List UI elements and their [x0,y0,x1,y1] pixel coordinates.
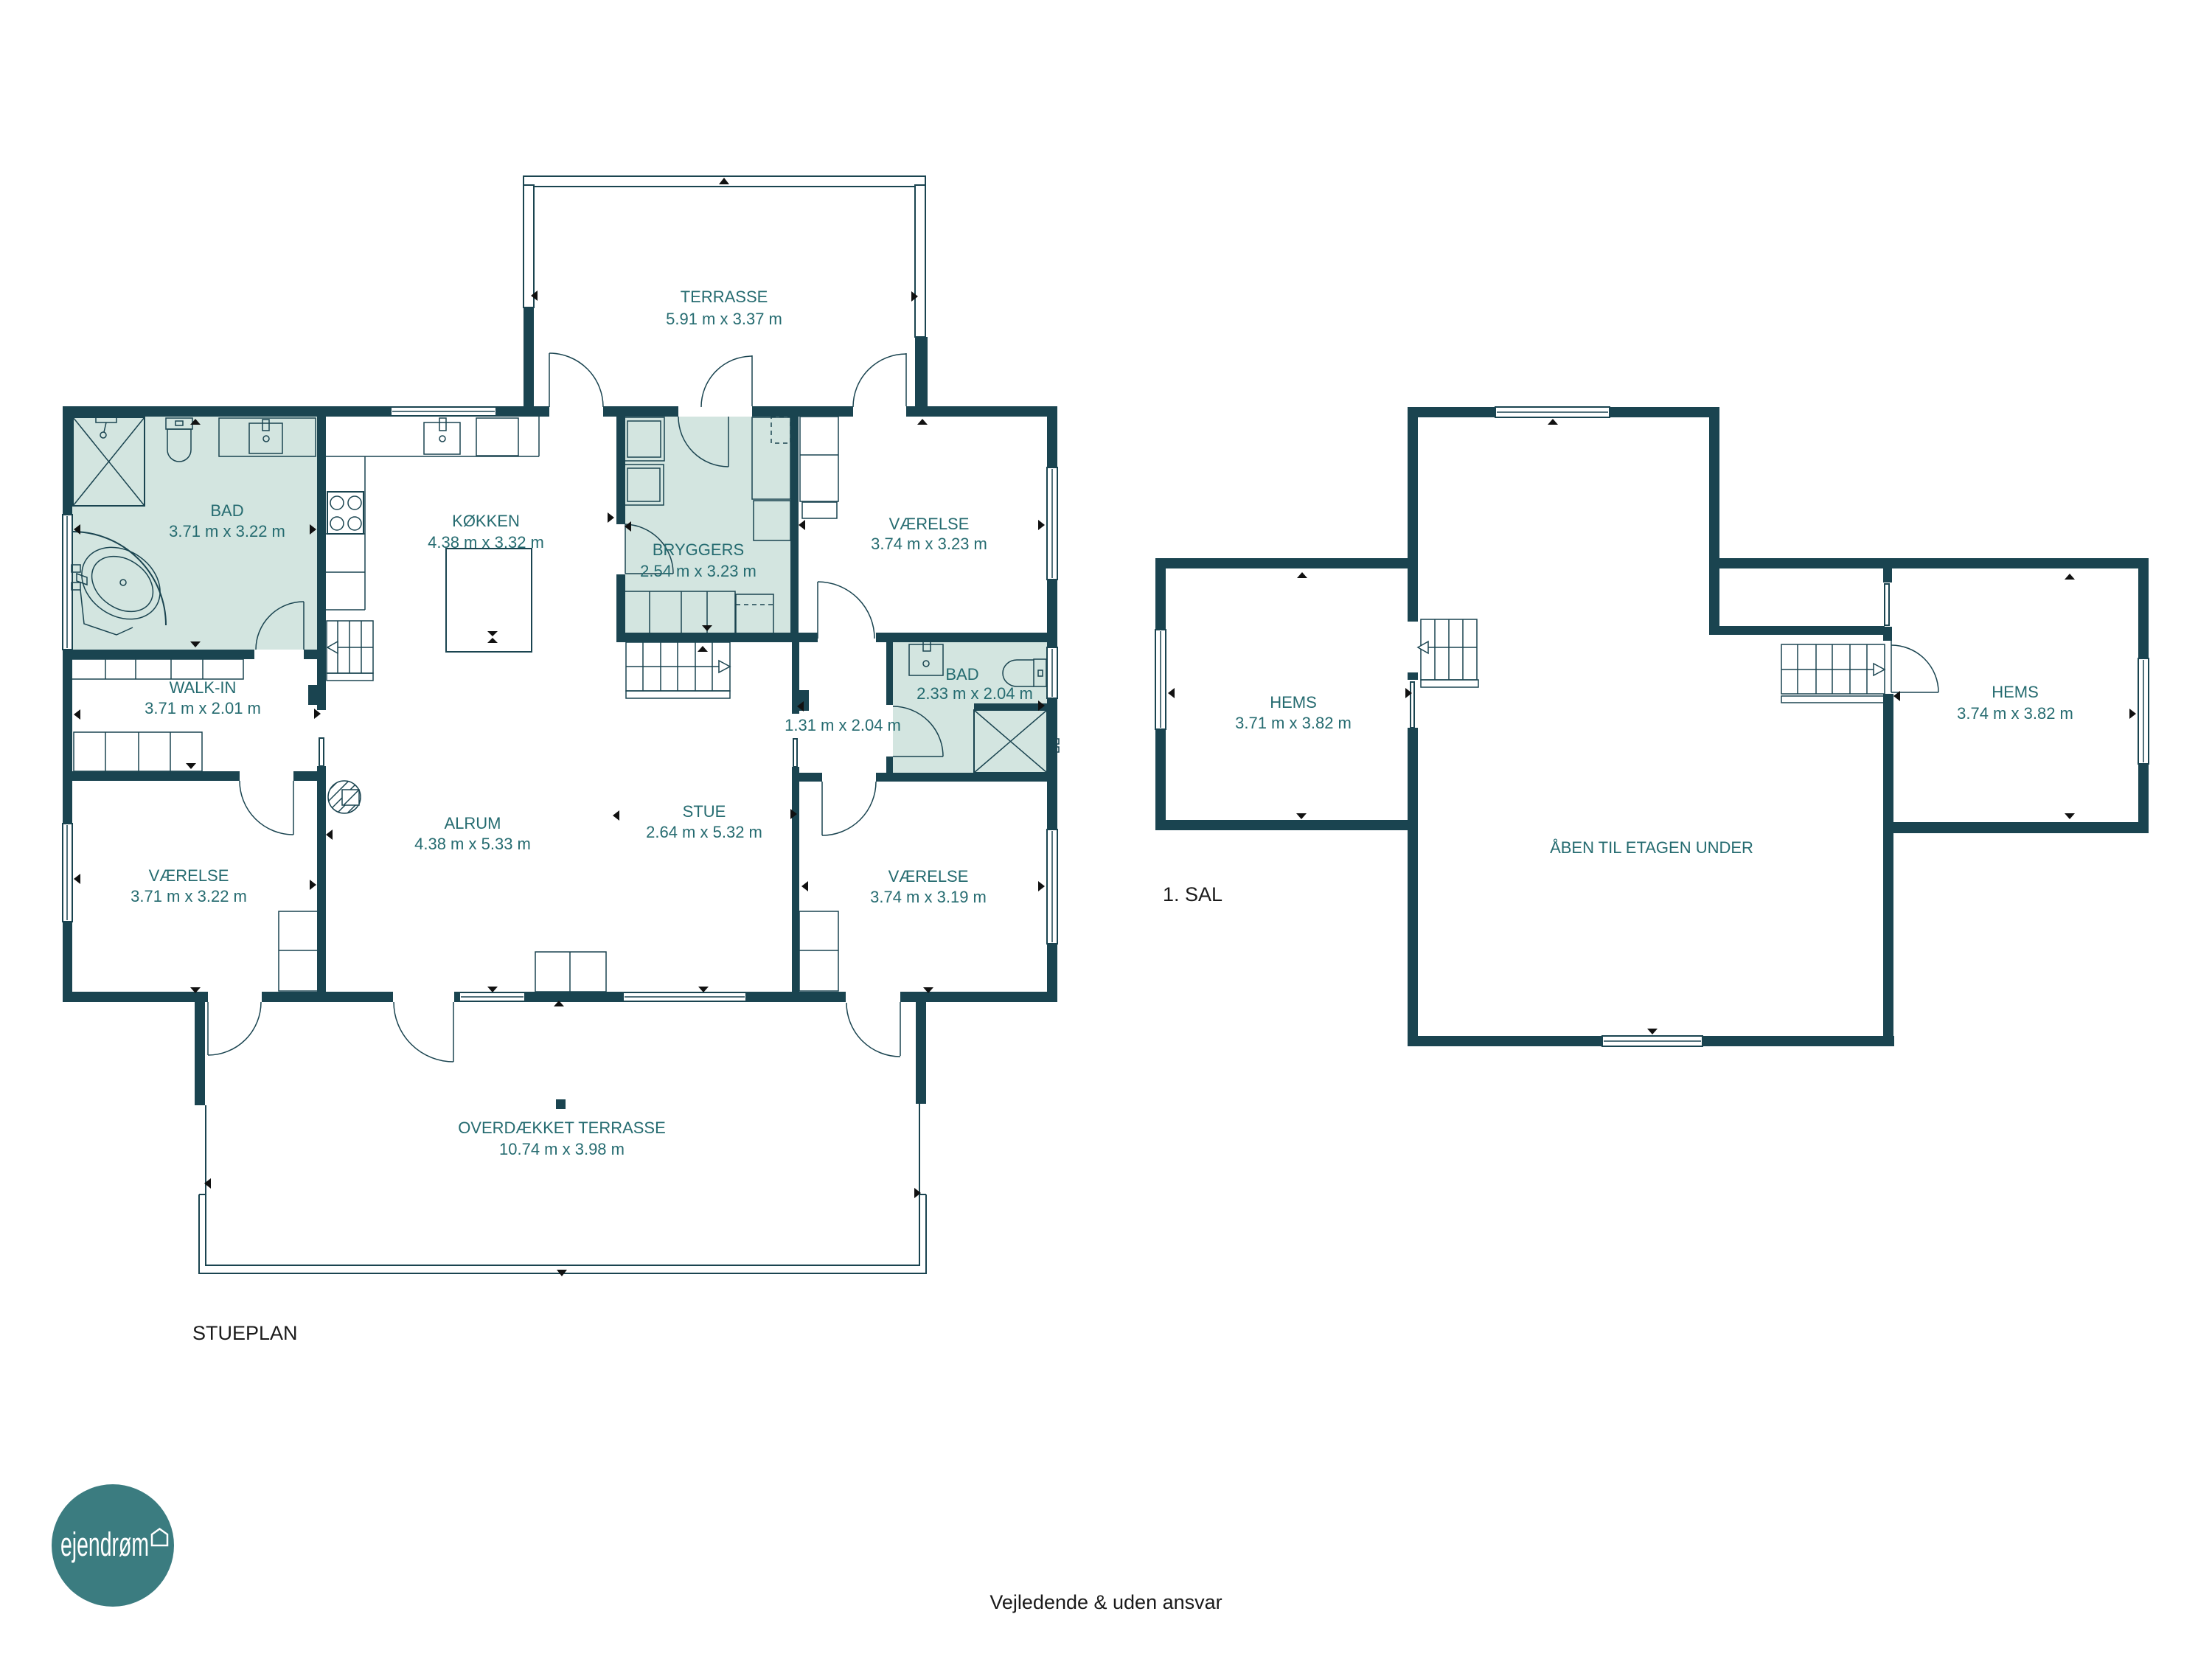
svg-text:3.71 m x 3.22 m: 3.71 m x 3.22 m [169,522,285,540]
svg-text:3.71 m x 2.01 m: 3.71 m x 2.01 m [145,699,261,717]
svg-text:STUE: STUE [683,802,726,821]
svg-text:STUEPLAN: STUEPLAN [192,1322,298,1344]
svg-text:3.74 m x 3.23 m: 3.74 m x 3.23 m [871,535,987,553]
svg-text:HEMS: HEMS [1992,683,2039,701]
svg-text:ejendrøm: ejendrøm [60,1526,149,1563]
svg-text:1.31 m x 2.04 m: 1.31 m x 2.04 m [785,716,901,734]
svg-text:ALRUM: ALRUM [444,814,501,832]
svg-text:1. SAL: 1. SAL [1163,883,1222,905]
svg-text:VÆRELSE: VÆRELSE [889,515,970,533]
svg-text:3.74 m x 3.19 m: 3.74 m x 3.19 m [870,888,987,906]
svg-text:WALK-IN: WALK-IN [170,678,237,697]
svg-text:VÆRELSE: VÆRELSE [149,866,229,885]
svg-text:BAD: BAD [945,665,978,684]
svg-text:3.71 m x 3.22 m: 3.71 m x 3.22 m [131,887,247,905]
svg-text:KØKKEN: KØKKEN [452,512,520,530]
svg-text:OVERDÆKKET TERRASSE: OVERDÆKKET TERRASSE [458,1119,666,1137]
svg-text:BAD: BAD [210,501,243,520]
svg-text:Vejledende & uden ansvar: Vejledende & uden ansvar [990,1591,1222,1613]
svg-text:2.33 m x 2.04 m: 2.33 m x 2.04 m [917,684,1033,703]
svg-text:ÅBEN TIL ETAGEN UNDER: ÅBEN TIL ETAGEN UNDER [1550,838,1753,857]
svg-text:BRYGGERS: BRYGGERS [653,540,744,559]
svg-text:3.74 m x 3.82 m: 3.74 m x 3.82 m [1957,704,2073,723]
svg-text:HEMS: HEMS [1270,693,1317,712]
svg-text:2.54 m x 3.23 m: 2.54 m x 3.23 m [640,562,757,580]
svg-text:TERRASSE: TERRASSE [681,288,768,306]
svg-text:4.38 m x 5.33 m: 4.38 m x 5.33 m [414,835,531,853]
svg-text:3.71 m x 3.82 m: 3.71 m x 3.82 m [1235,714,1352,732]
svg-text:10.74 m x 3.98 m: 10.74 m x 3.98 m [499,1140,625,1158]
svg-text:5.91 m x 3.37 m: 5.91 m x 3.37 m [666,310,782,328]
svg-text:VÆRELSE: VÆRELSE [888,867,969,886]
svg-text:4.38 m x 3.32 m: 4.38 m x 3.32 m [428,533,544,552]
svg-text:2.64 m x 5.32 m: 2.64 m x 5.32 m [646,823,762,841]
